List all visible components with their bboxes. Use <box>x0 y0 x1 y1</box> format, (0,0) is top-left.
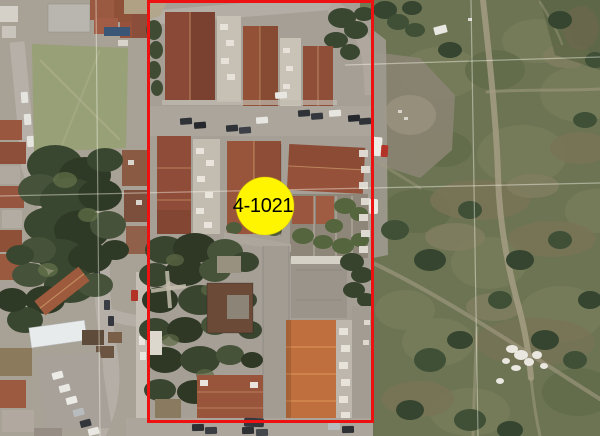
solar-panels <box>104 27 130 36</box>
map-viewport: 4-1021 <box>0 0 600 436</box>
concrete-courtyard <box>291 264 347 318</box>
zone-scrubland-east <box>369 0 600 436</box>
gray-warehouse-roof <box>48 4 90 32</box>
red-car-east <box>381 145 389 157</box>
parking-lot <box>36 352 112 430</box>
zone-residential-west <box>0 0 148 436</box>
orange-roof-building <box>286 320 356 428</box>
red-car <box>131 290 138 301</box>
map-canvas[interactable]: 4-1021 <box>0 0 600 436</box>
marker-label: 4-1021 <box>233 195 294 217</box>
street-parcel-south <box>263 246 289 422</box>
